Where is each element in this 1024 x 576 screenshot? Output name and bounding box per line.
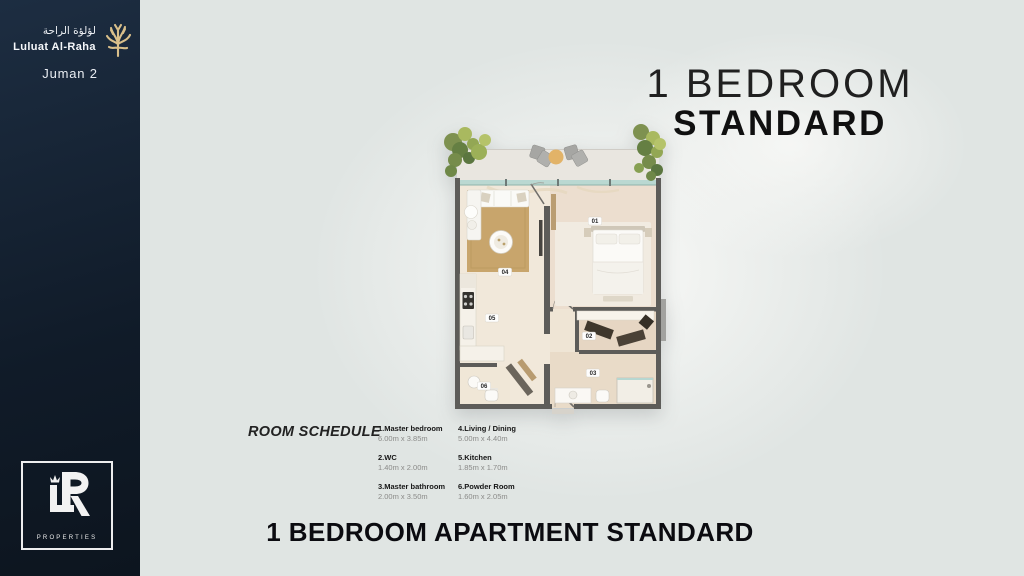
room-label-01: 01	[588, 217, 602, 225]
logo-caption: PROPERTIES	[23, 535, 111, 541]
room-dimensions: 1.60m x 2.05m	[458, 492, 548, 501]
footer-caption: 1 BEDROOM APARTMENT STANDARD	[230, 517, 790, 548]
room-label-03: 03	[586, 369, 600, 377]
room-name: 6.Powder Room	[458, 482, 548, 491]
room-schedule-column-2: 4.Living / Dining 5.00m x 4.40m 5.Kitche…	[458, 424, 548, 510]
apartment-title: 1 BEDROOM STANDARD	[642, 62, 918, 144]
room-name: 2.WC	[378, 453, 468, 462]
schedule-entry: 2.WC 1.40m x 2.00m	[378, 453, 468, 473]
lr-monogram	[35, 470, 99, 526]
sidebar: لؤلؤة الراحة Luluat Al-Raha	[0, 0, 140, 576]
brand-name: Luluat Al-Raha	[13, 41, 96, 53]
schedule-entry: 6.Powder Room 1.60m x 2.05m	[458, 482, 548, 502]
brand-text: لؤلؤة الراحة Luluat Al-Raha	[13, 25, 96, 52]
schedule-entry: 1.Master bedroom 6.00m x 3.85m	[378, 424, 468, 444]
room-name: 3.Master bathroom	[378, 482, 468, 491]
slide: لؤلؤة الراحة Luluat Al-Raha	[0, 0, 1024, 576]
room-name: 1.Master bedroom	[378, 424, 468, 433]
crown-icon	[50, 475, 60, 483]
room-dimensions: 1.85m x 1.70m	[458, 463, 548, 472]
chair	[468, 221, 477, 230]
lr-properties-logo: PROPERTIES	[21, 461, 113, 550]
brand-block: لؤلؤة الراحة Luluat Al-Raha	[0, 20, 140, 81]
svg-text:06: 06	[481, 384, 488, 390]
title-line-2: STANDARD	[642, 104, 918, 144]
svg-text:05: 05	[489, 316, 496, 322]
dresser	[551, 194, 556, 230]
room-label-02: 02	[582, 332, 596, 340]
room-dimensions: 6.00m x 3.85m	[378, 434, 468, 443]
svg-text:03: 03	[590, 371, 597, 377]
room-label-05: 05	[485, 314, 499, 322]
room-schedule-title: ROOM SCHEDULE	[248, 424, 381, 440]
svg-text:01: 01	[592, 219, 599, 225]
svg-text:02: 02	[586, 334, 593, 340]
room-label-06: 06	[477, 382, 491, 390]
svg-text:04: 04	[502, 270, 509, 276]
room-schedule-column-1: 1.Master bedroom 6.00m x 3.85m 2.WC 1.40…	[378, 424, 468, 510]
floorplan: 01 02 03 04 05 06	[427, 124, 669, 420]
room-dimensions: 2.00m x 3.50m	[378, 492, 468, 501]
tv-console	[539, 220, 543, 256]
room-name: 4.Living / Dining	[458, 424, 548, 433]
bed	[584, 226, 652, 302]
coffee-table	[490, 231, 513, 254]
project-name: Juman 2	[0, 66, 140, 81]
brand-arabic-name: لؤلؤة الراحة	[13, 25, 96, 38]
room-name: 5.Kitchen	[458, 453, 548, 462]
coral-emblem-icon	[103, 20, 133, 58]
title-line-1: 1 BEDROOM	[642, 62, 918, 107]
schedule-entry: 4.Living / Dining 5.00m x 4.40m	[458, 424, 548, 444]
room-label-04: 04	[498, 268, 512, 276]
room-dimensions: 1.40m x 2.00m	[378, 463, 468, 472]
glass-door	[457, 179, 659, 186]
side-table	[465, 206, 478, 219]
schedule-entry: 5.Kitchen 1.85m x 1.70m	[458, 453, 548, 473]
room-dimensions: 5.00m x 4.40m	[458, 434, 548, 443]
schedule-entry: 3.Master bathroom 2.00m x 3.50m	[378, 482, 468, 502]
